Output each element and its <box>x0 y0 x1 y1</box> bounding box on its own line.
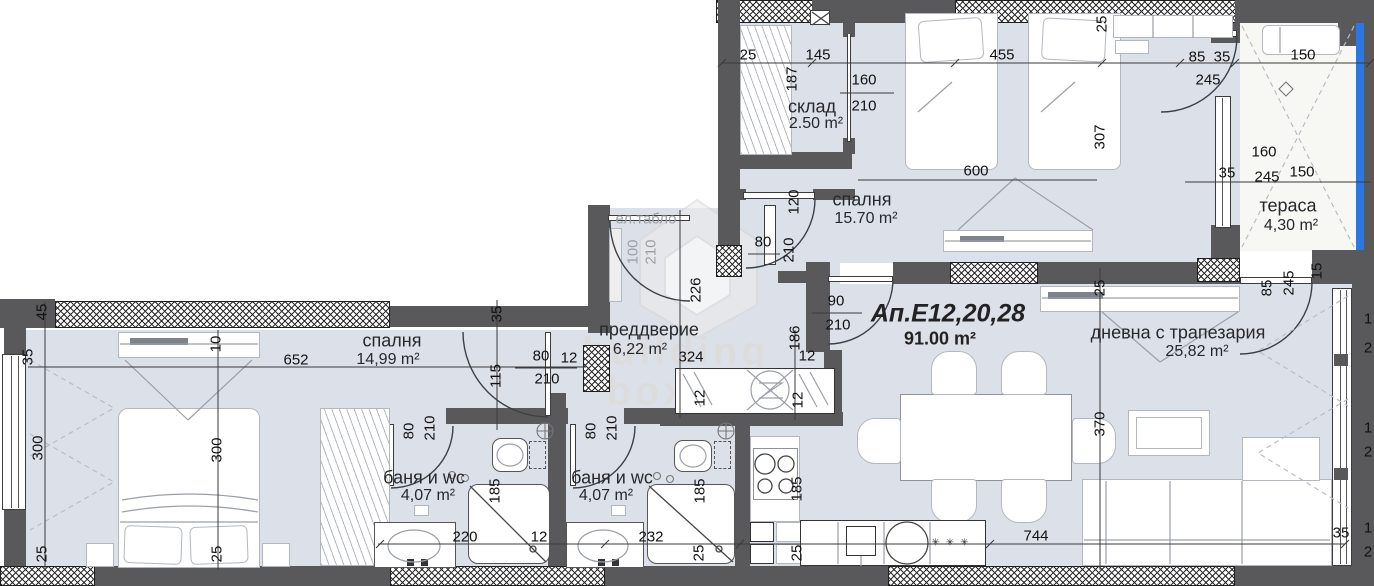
dimension-label: 35 <box>490 306 505 323</box>
dimension-label: 210 <box>423 415 438 440</box>
dimension-label: 12 <box>561 351 578 366</box>
dimension-label: 35 <box>21 349 36 366</box>
dimension-label: 210 <box>825 318 850 333</box>
dimension-label: 210 <box>851 99 876 114</box>
dimension-label: 232 <box>638 530 663 545</box>
dimension-label: 185 <box>693 478 708 503</box>
room-area: 6,22 m² <box>613 341 667 359</box>
dimension-label: 25 <box>692 545 707 562</box>
dimension-label: 80 <box>533 349 550 364</box>
dimension-label: 185 <box>488 478 503 503</box>
room-area: 4,30 m² <box>1264 217 1318 235</box>
dimension-label: 220 <box>452 530 477 545</box>
dimension-label: 245 <box>1282 270 1297 295</box>
dimension-label: 300 <box>31 435 46 460</box>
dimension-label: 90 <box>828 294 845 309</box>
dimension-label: 100 <box>626 239 641 264</box>
dimension-label: 185 <box>790 476 805 501</box>
apartment-title: Ап.Е12,20,28 <box>871 300 1025 329</box>
dimension-label: 2 <box>1364 445 1372 460</box>
room-name: спалня <box>363 331 422 352</box>
annotation-label: ел.табло <box>616 212 677 227</box>
dimension-label: 120 <box>787 189 802 214</box>
dimension-label: 307 <box>1093 124 1108 149</box>
dimension-label: 35 <box>1214 50 1231 65</box>
dimension-label: 80 <box>584 423 599 440</box>
room-name: дневна с трапезария <box>1091 323 1266 344</box>
dimension-label: 600 <box>963 164 988 179</box>
dimension-label: 25 <box>790 545 805 562</box>
dimension-label: 35 <box>1333 526 1350 541</box>
room-area: 4,07 m² <box>579 487 633 505</box>
dimension-label: 187 <box>785 66 800 91</box>
dimension-label: 115 <box>489 364 504 388</box>
dimension-label: 226 <box>689 277 704 302</box>
dimension-label: 652 <box>283 353 308 368</box>
apartment-area: 91.00 m² <box>904 329 976 350</box>
dimension-label: 150 <box>1290 48 1315 63</box>
dimension-label: 210 <box>644 239 659 264</box>
dimension-label: 324 <box>678 350 703 365</box>
dimension-label: 85 <box>1260 280 1275 297</box>
dimension-label: 1 <box>1364 421 1372 436</box>
dimension-label: 12 <box>799 349 816 364</box>
dimension-label: 160 <box>851 73 876 88</box>
dimension-label: 45 <box>35 304 50 321</box>
room-name: баня и wc <box>571 468 653 489</box>
dimension-label: 25 <box>740 48 757 63</box>
room-name: баня и wc <box>383 468 465 489</box>
dimension-label: 85 <box>1189 50 1206 65</box>
dimension-label: 35 <box>1219 166 1236 181</box>
dimension-label: 10 <box>209 336 224 353</box>
dimension-label: 150 <box>1289 165 1314 180</box>
room-name: спалня <box>833 190 892 211</box>
dimension-label: 80 <box>755 235 772 250</box>
dimension-label: 300 <box>210 437 225 462</box>
dimension-label: 25 <box>35 546 50 563</box>
dimension-label: 210 <box>605 415 620 440</box>
dimension-label: 210 <box>782 237 797 262</box>
dimension-label: 12 <box>693 390 708 407</box>
dimension-label: 15 <box>1310 263 1325 280</box>
room-area: 2.50 m² <box>789 115 843 133</box>
room-area: 14,99 m² <box>356 351 419 369</box>
dimension-label: 80 <box>402 423 417 440</box>
room-name: тераса <box>1259 196 1316 217</box>
dimension-label: 455 <box>989 48 1014 63</box>
dimension-label: 1 <box>1364 521 1372 536</box>
dimension-label: 744 <box>1023 529 1048 544</box>
dimension-label: 2 <box>1364 341 1372 356</box>
room-area: 15.70 m² <box>834 210 897 228</box>
dimension-label: 2 <box>1364 545 1372 560</box>
dimension-label: 25 <box>210 546 225 563</box>
dimension-label: 25 <box>1095 16 1110 33</box>
dimension-label: 210 <box>534 372 559 387</box>
floor-plan: building box <box>0 0 1374 586</box>
dimension-label: 1 <box>1364 312 1372 327</box>
room-name: преддверие <box>599 320 699 341</box>
dimension-label: 245 <box>1254 170 1279 185</box>
dimension-label: 12 <box>791 392 806 409</box>
dimension-label: 25 <box>1093 280 1108 297</box>
dimension-label: 370 <box>1093 411 1108 436</box>
dimension-label: 12 <box>531 530 548 545</box>
dimension-label: 245 <box>1195 73 1220 88</box>
room-area: 4,07 m² <box>401 487 455 505</box>
dimension-label: 160 <box>1251 145 1276 160</box>
room-area: 25,82 m² <box>1165 343 1228 361</box>
dimension-label: 145 <box>805 48 830 63</box>
